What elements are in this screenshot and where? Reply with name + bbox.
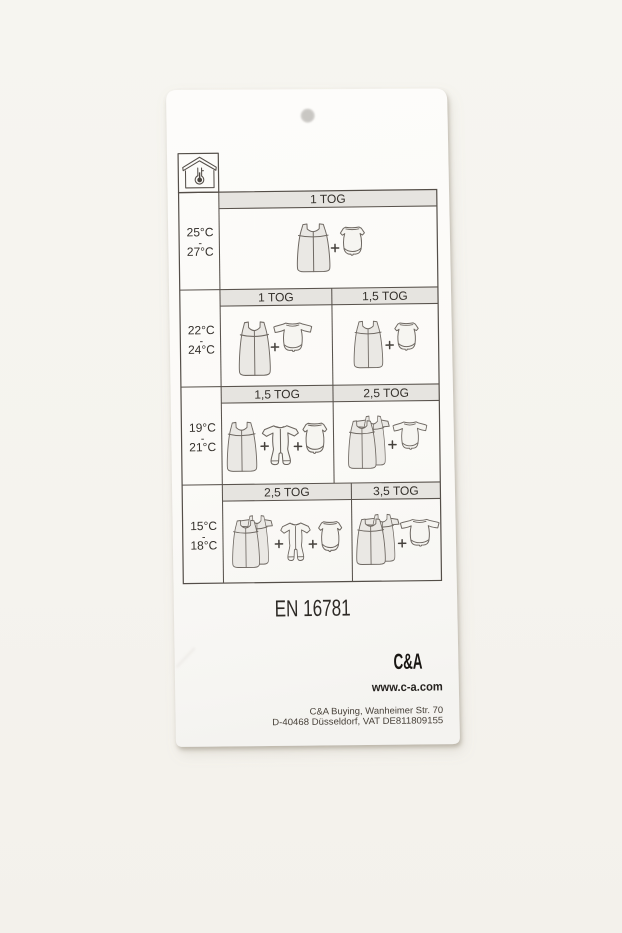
svg-text:18°C: 18°C xyxy=(190,538,217,552)
svg-text:27°C: 27°C xyxy=(187,245,214,259)
svg-text:21°C: 21°C xyxy=(189,440,216,454)
svg-text:2,5 TOG: 2,5 TOG xyxy=(264,485,310,500)
svg-text:1 TOG: 1 TOG xyxy=(258,290,294,304)
svg-text:1,5 TOG: 1,5 TOG xyxy=(254,387,300,402)
svg-text:1 TOG: 1 TOG xyxy=(310,192,346,206)
svg-text:EN 16781: EN 16781 xyxy=(274,595,350,622)
svg-text:1,5 TOG: 1,5 TOG xyxy=(362,289,408,304)
svg-text:24°C: 24°C xyxy=(188,343,215,357)
svg-text:D-40468 Düsseldorf, VAT DE8118: D-40468 Düsseldorf, VAT DE811809155 xyxy=(272,715,443,727)
svg-text:C&A: C&A xyxy=(393,649,422,674)
svg-text:www.c-a.com: www.c-a.com xyxy=(371,679,443,694)
svg-text:2,5 TOG: 2,5 TOG xyxy=(363,386,409,401)
svg-text:3,5 TOG: 3,5 TOG xyxy=(373,484,419,499)
